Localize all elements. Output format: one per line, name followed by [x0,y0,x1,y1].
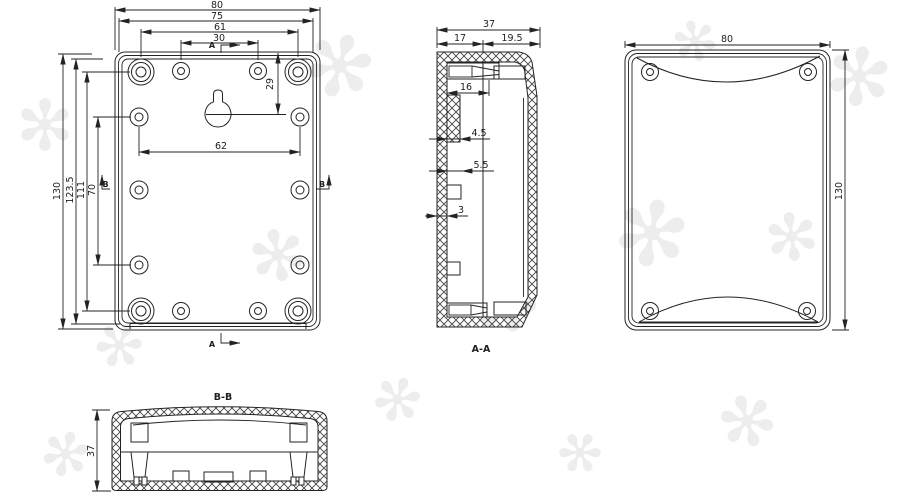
section-letter-b: B [319,180,325,189]
screw-boss [285,59,311,85]
watermark-glyph: ✻ [665,5,726,79]
dim-label-75: 75 [211,11,223,22]
section-marker-b-left: B [102,175,110,189]
dimension-29: 29 [265,53,278,114]
watermark-glyph: ✻ [819,27,898,128]
section-letter-a: A [209,340,216,349]
dim-label-70: 70 [87,184,98,196]
section-bb-dim-37: 37 [86,410,111,491]
pillar-foot [134,477,139,485]
wall-slot [447,262,460,275]
section-letter-a: A [209,41,216,50]
section-aa-view: 37 17 19.5 [425,19,540,355]
dim-label-3: 3 [458,205,464,216]
watermark-glyph: ✻ [290,10,388,126]
dim-label-80: 80 [721,34,733,45]
watermark-glyph: ✻ [604,176,700,294]
section-aa-dims-top: 37 17 19.5 [437,19,540,52]
pillar-foot [142,477,147,485]
dimension-lines-top: 80 75 61 30 [115,0,320,60]
dim-label-17: 17 [454,33,466,44]
dim-label-37: 37 [86,445,97,457]
front-view: 80 75 61 30 130 123.5 111 70 62 29 [52,0,329,349]
section-aa-label: A-A [472,344,491,355]
watermark-glyph: ✻ [707,374,788,470]
dim-label-130: 130 [52,182,63,200]
dim-label-19-5: 19.5 [501,33,522,44]
dim-label-37: 37 [483,19,495,30]
dim-label-29: 29 [265,78,276,90]
dim-label-111: 111 [76,181,87,199]
mounting-keyhole [205,90,286,127]
dim-label-62: 62 [215,141,227,152]
drawing-page: ✻ ✻ ✻ ✻ ✻ ✻ ✻ ✻ ✻ ✻ ✻ ✻ ✻ ✻ ✻ [0,0,900,500]
pillar-foot [291,477,296,485]
pillar-foot [299,477,304,485]
section-marker-a-bottom: A [209,333,240,349]
screw-boss [128,59,154,85]
dim-label-123-5: 123.5 [65,176,76,203]
technical-drawing-canvas: ✻ ✻ ✻ ✻ ✻ ✻ ✻ ✻ ✻ ✻ ✻ ✻ ✻ ✻ ✻ [0,0,900,500]
wall-rib-section [447,95,460,142]
section-bb-view: B-B 37 [86,392,327,491]
dim-label-130: 130 [834,182,845,200]
section-letter-b: B [102,180,108,189]
section-bb-label: B-B [214,392,232,403]
screw-boss [128,298,154,324]
section-marker-b-right: B [316,175,329,189]
dim-label-61: 61 [214,22,226,33]
watermark-glyph: ✻ [361,360,432,443]
screw-boss [285,298,311,324]
watermark-glyph: ✻ [16,85,75,167]
watermark-glyph: ✻ [545,414,617,492]
dim-label-4-5: 4.5 [471,128,486,139]
dim-label-80: 80 [211,0,223,11]
dimension-62: 62 [139,127,300,156]
watermark-glyph: ✻ [760,198,824,280]
dim-label-16: 16 [460,82,472,93]
wall-slot [447,185,461,199]
dim-label-5-5: 5.5 [473,160,488,171]
